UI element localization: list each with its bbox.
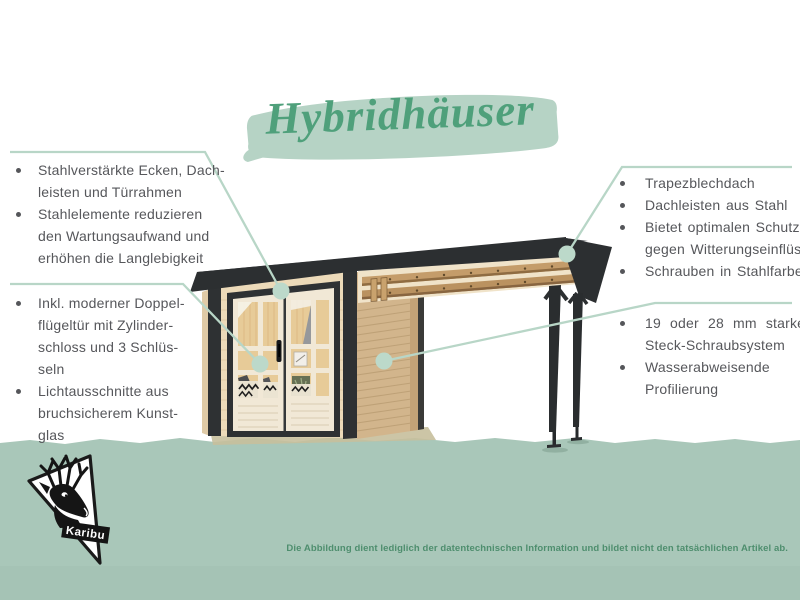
bullet-icon: [16, 301, 21, 306]
feature-item: leisten und Türrahmen: [10, 181, 225, 203]
feature-text: leisten und Türrahmen: [38, 184, 182, 200]
feature-text: Stahlverstärkte Ecken, Dach-: [38, 162, 225, 178]
feature-text: Dachleisten aus Stahl: [645, 197, 788, 213]
feature-item: Stahlverstärkte Ecken, Dach-: [10, 159, 225, 181]
feature-item: erhöhen die Langlebigkeit: [10, 247, 225, 269]
feature-list-top-left: Stahlverstärkte Ecken, Dach- leisten und…: [10, 159, 225, 269]
feature-text: seln: [38, 361, 64, 377]
shed-double-door: [227, 281, 340, 437]
feature-item: 19 oder 28 mm starkes: [618, 312, 800, 334]
bullet-icon: [620, 181, 625, 186]
feature-text: erhöhen die Langlebigkeit: [38, 250, 203, 266]
feature-item: den Wartungsaufwand und: [10, 225, 225, 247]
callout-marker-door-glass: [252, 356, 269, 373]
feature-item: Profilierung: [618, 378, 800, 400]
bullet-icon: [16, 389, 21, 394]
feature-text: Bietet optimalen Schutz: [645, 219, 800, 235]
feature-text: Stahlelemente reduzieren: [38, 206, 202, 222]
feature-item: seln: [10, 358, 185, 380]
feature-item: Schrauben in Stahlfarbe: [618, 260, 800, 282]
feature-text: glas: [38, 427, 64, 443]
bullet-icon: [16, 212, 21, 217]
feature-item: Trapezblechdach: [618, 172, 800, 194]
feature-text: Schrauben in Stahlfarbe: [645, 263, 800, 279]
bullet-icon: [620, 203, 625, 208]
feature-item: Steck-Schraubsystem: [618, 334, 800, 356]
disclaimer-text: Die Abbildung dient lediglich der datent…: [286, 543, 788, 554]
door-handle-icon: [277, 340, 282, 362]
feature-text: Trapezblechdach: [645, 175, 755, 191]
feature-list-bottom-right: 19 oder 28 mm starkes Steck-Schraubsyste…: [618, 312, 800, 400]
feature-item: schloss und 3 Schlüs-: [10, 336, 185, 358]
feature-text: schloss und 3 Schlüs-: [38, 339, 178, 355]
feature-item: Wasserabweisende: [618, 356, 800, 378]
bullet-icon: [620, 225, 625, 230]
ground-band: [0, 437, 800, 600]
garden-shed: [190, 237, 612, 448]
feature-item: gegen Witterungseinflüsse: [618, 238, 800, 260]
feature-item: bruchsicherem Kunst-: [10, 402, 185, 424]
feature-item: flügeltür mit Zylinder-: [10, 314, 185, 336]
bullet-icon: [620, 269, 625, 274]
feature-list-top-right: Trapezblechdach Dachleisten aus Stahl Bi…: [618, 172, 800, 282]
feature-text: Profilierung: [645, 381, 718, 397]
feature-text: Steck-Schraubsystem: [645, 337, 785, 353]
feature-text: 19 oder 28 mm starkes: [645, 315, 800, 331]
feature-text: Lichtausschnitte aus: [38, 383, 169, 399]
feature-text: gegen Witterungseinflüsse: [645, 241, 800, 257]
feature-text: flügeltür mit Zylinder-: [38, 317, 173, 333]
feature-text: den Wartungsaufwand und: [38, 228, 209, 244]
feature-item: Bietet optimalen Schutz: [618, 216, 800, 238]
feature-item: Lichtausschnitte aus: [10, 380, 185, 402]
feature-text: Wasserabweisende: [645, 359, 770, 375]
feature-item: Inkl. moderner Doppel-: [10, 292, 185, 314]
bullet-icon: [620, 365, 625, 370]
feature-text: bruchsicherem Kunst-: [38, 405, 178, 421]
canopy-posts: [545, 285, 587, 448]
feature-item: glas: [10, 424, 185, 446]
bullet-icon: [620, 321, 625, 326]
infographic-page: Karibu Hybridhäuser Stahlverstärkte Ecke…: [0, 0, 800, 600]
feature-list-bottom-left: Inkl. moderner Doppel- flügeltür mit Zyl…: [10, 292, 185, 446]
callout-marker-door-top: [273, 283, 290, 300]
feature-item: Stahlelemente reduzieren: [10, 203, 225, 225]
bullet-icon: [16, 168, 21, 173]
callout-marker-wall: [376, 353, 393, 370]
feature-item: Dachleisten aus Stahl: [618, 194, 800, 216]
callout-marker-roof: [559, 246, 576, 263]
feature-text: Inkl. moderner Doppel-: [38, 295, 185, 311]
